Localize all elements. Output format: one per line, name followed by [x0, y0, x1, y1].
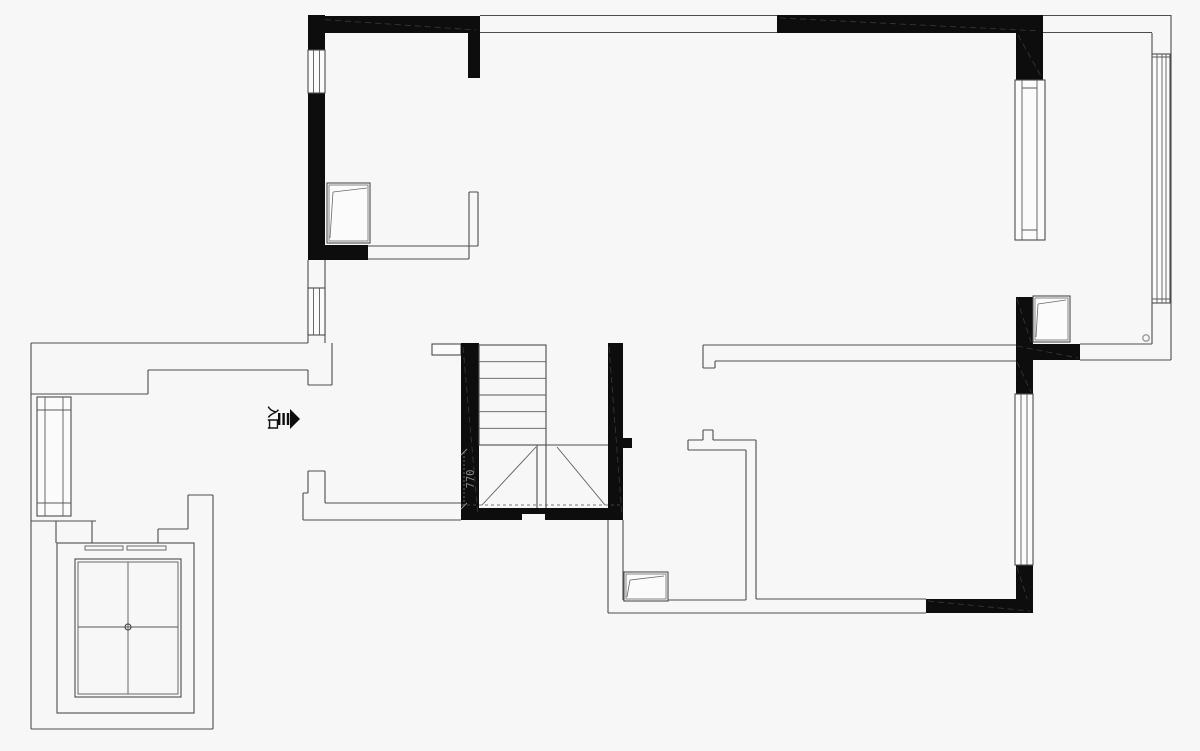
entry-arrow-icon [278, 409, 300, 429]
elevator-threshold-right [127, 546, 166, 550]
window-left-upper [308, 50, 325, 93]
partition-topleft-room [368, 192, 478, 259]
window-left-middle [308, 288, 325, 335]
casement-window-right [1033, 296, 1070, 342]
partition-lower-middle [688, 430, 756, 450]
wall-stub [432, 344, 461, 355]
stair-treads [479, 345, 546, 445]
floor-plan-drawing: 770 入 [0, 0, 1200, 751]
staircase: 770 [432, 343, 632, 520]
bottomleft-wall-step [303, 471, 461, 520]
hinge-circle-symbol [1143, 335, 1149, 341]
floor-plan-canvas: 770 入 [0, 0, 1200, 751]
elevator-shaft [31, 495, 213, 729]
bottom-wall [608, 599, 1033, 613]
topright-wall-block [1016, 33, 1043, 80]
window-corridor-left [37, 397, 71, 516]
window-right-lower [1015, 394, 1033, 565]
partition-upper-middle [703, 345, 1016, 368]
elevator-cab [75, 559, 181, 697]
casement-window-bottom [624, 572, 668, 601]
casement-window-topleft [327, 183, 370, 243]
stair-dimension-label: 770 [465, 470, 477, 489]
window-right-tall [1152, 54, 1170, 303]
window-topright [1015, 80, 1045, 240]
entrance-annotation: 入口 [266, 406, 300, 430]
elevator-threshold-left [85, 546, 123, 550]
stair-landing [461, 445, 623, 508]
entrance-label: 入口 [266, 406, 280, 430]
